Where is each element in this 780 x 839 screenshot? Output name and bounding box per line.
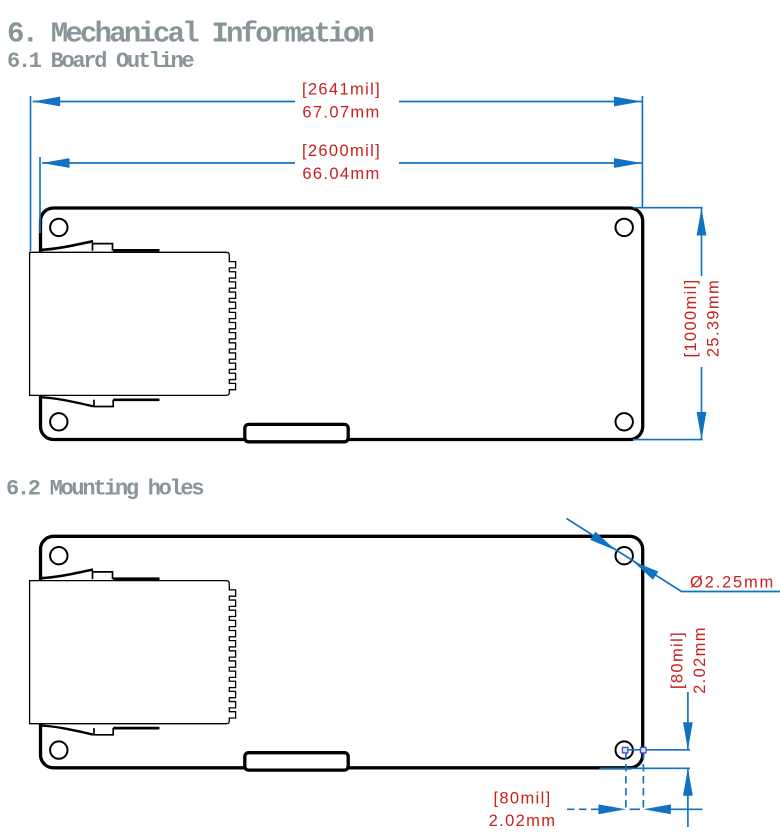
svg-text:[1000mil]: [1000mil] (682, 278, 700, 357)
svg-text:Ø2.25mm: Ø2.25mm (690, 574, 775, 592)
svg-text:6.1 Board Outline: 6.1 Board Outline (7, 49, 194, 74)
svg-text:[2641mil]: [2641mil] (302, 81, 381, 99)
svg-text:[80mil]: [80mil] (669, 631, 687, 689)
svg-text:66.04mm: 66.04mm (302, 165, 380, 183)
svg-text:6.2 Mounting holes: 6.2 Mounting holes (6, 477, 203, 502)
svg-text:[2600mil]: [2600mil] (302, 142, 381, 160)
svg-text:2.02mm: 2.02mm (489, 812, 557, 830)
svg-text:6. Mechanical Information: 6. Mechanical Information (7, 18, 373, 51)
svg-text:67.07mm: 67.07mm (302, 104, 380, 122)
svg-text:25.39mm: 25.39mm (705, 279, 723, 357)
svg-text:[80mil]: [80mil] (493, 790, 551, 808)
svg-text:2.02mm: 2.02mm (691, 626, 709, 694)
